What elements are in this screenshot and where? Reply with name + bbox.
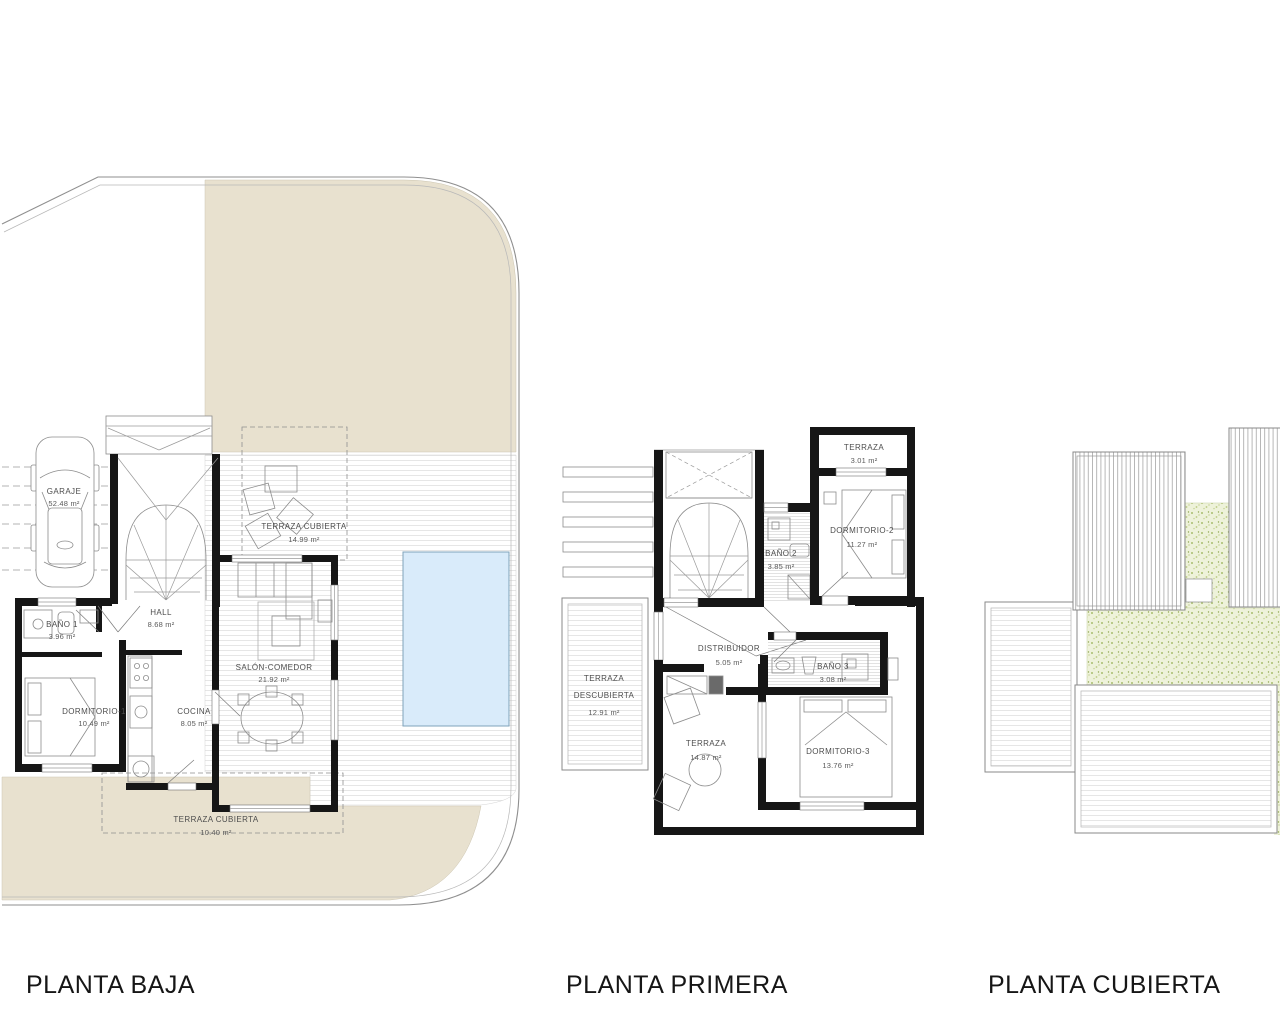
roof-skylight-box (1186, 579, 1212, 602)
roof-deck-bottom (1075, 685, 1277, 833)
svg-text:11.27 m²: 11.27 m² (847, 540, 878, 549)
room-label-bano1: BAÑO 1 (46, 620, 78, 629)
svg-text:3.85 m²: 3.85 m² (768, 562, 795, 571)
room-label-dormitorio3: DORMITORIO-3 (806, 747, 870, 756)
svg-text:DESCUBIERTA: DESCUBIERTA (574, 691, 635, 700)
svg-text:8.68 m²: 8.68 m² (148, 620, 175, 629)
room-label-distribuidor: DISTRIBUIDOR (698, 644, 760, 653)
stair-block-p1 (654, 450, 764, 607)
svg-text:5.05 m²: 5.05 m² (716, 658, 743, 667)
room-label-terraza-cubierta-1: TERRAZA CUBIERTA (261, 522, 346, 531)
terraza-dorm3-block (653, 664, 924, 835)
svg-text:14.99 m²: 14.99 m² (288, 535, 319, 544)
roof-striped-right (1229, 428, 1280, 607)
car-icon (31, 437, 99, 587)
room-label-dormitorio1: DORMITORIO-1 (62, 707, 126, 716)
room-label-terraza-descubierta: TERRAZA (584, 674, 624, 683)
terraza-descubierta-deck (562, 598, 648, 770)
entry-stairs (106, 416, 220, 607)
sand-area-top (205, 180, 516, 452)
svg-text:21.92 m²: 21.92 m² (258, 675, 289, 684)
room-label-dormitorio2: DORMITORIO-2 (830, 526, 894, 535)
svg-text:13.76 m²: 13.76 m² (822, 761, 853, 770)
svg-text:14.87 m²: 14.87 m² (690, 753, 721, 762)
svg-text:3.96 m²: 3.96 m² (49, 632, 76, 641)
svg-text:3.01 m²: 3.01 m² (851, 456, 878, 465)
room-label-terraza-bottom: TERRAZA (686, 739, 726, 748)
terraza-dorm2-block (810, 427, 915, 607)
swimming-pool (403, 552, 509, 726)
svg-text:8.05 m²: 8.05 m² (181, 719, 208, 728)
room-label-terraza-cubierta-2: TERRAZA CUBIERTA (173, 815, 258, 824)
floor-plan-planta-baja: GARAJE 52.48 m² BAÑO 1 3.96 m² HALL 8.68… (0, 160, 555, 960)
svg-text:10.49 m²: 10.49 m² (78, 719, 109, 728)
room-label-terraza-p1: TERRAZA (844, 443, 884, 452)
roof-striped-center (1073, 452, 1185, 610)
room-label-garaje: GARAJE (47, 487, 81, 496)
floorplan-sheet: GARAJE 52.48 m² BAÑO 1 3.96 m² HALL 8.68… (0, 0, 1280, 1024)
louver-slats (563, 467, 653, 577)
room-label-cocina: COCINA (177, 707, 211, 716)
room-label-bano3: BAÑO 3 (817, 662, 849, 671)
plan-title-cubierta: PLANTA CUBIERTA (988, 971, 1221, 1000)
kitchen-fixtures (128, 656, 154, 782)
floor-plan-planta-primera: TERRAZA 3.01 m² DORMITORIO-2 11.27 m² BA… (555, 415, 935, 845)
svg-text:10.40 m²: 10.40 m² (200, 828, 231, 837)
svg-text:3.08 m²: 3.08 m² (820, 675, 847, 684)
room-label-hall: HALL (150, 608, 172, 617)
bed-dormitorio1 (25, 678, 95, 756)
room-label-salon: SALÓN-COMEDOR (236, 663, 313, 672)
roof-deck-left (985, 602, 1077, 772)
svg-text:12.91 m²: 12.91 m² (588, 708, 619, 717)
room-label-bano2: BAÑO 2 (765, 549, 797, 558)
plan-title-primera: PLANTA PRIMERA (566, 971, 788, 1000)
svg-text:52.48 m²: 52.48 m² (48, 499, 79, 508)
floor-plan-planta-cubierta (975, 420, 1280, 840)
plan-title-baja: PLANTA BAJA (26, 971, 195, 1000)
